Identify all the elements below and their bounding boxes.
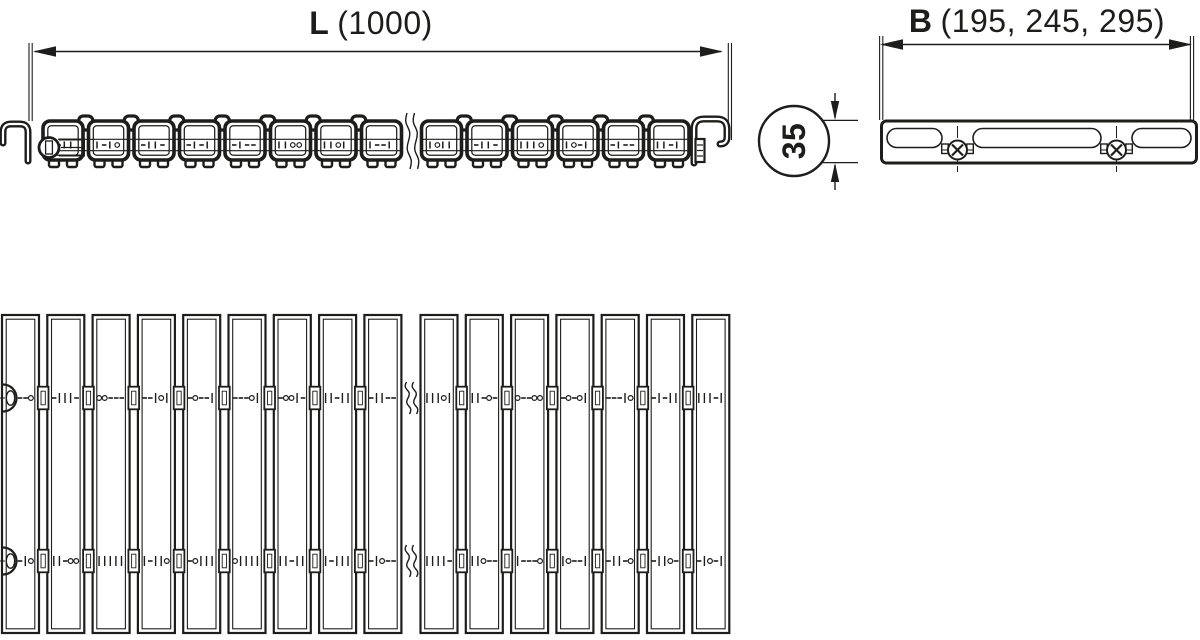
break-line xyxy=(405,382,411,414)
length-value: (1000) xyxy=(337,5,433,41)
grate-slat xyxy=(602,315,639,633)
grate-slat xyxy=(511,315,548,633)
plan-view-slats xyxy=(2,315,729,633)
rail-gap-connector xyxy=(264,550,275,573)
break-line xyxy=(406,113,412,169)
height-dimension-label: 35 xyxy=(776,123,812,160)
end-view: B(195, 245, 295) 35 xyxy=(759,3,1197,190)
rail-gap-connector xyxy=(638,387,649,410)
grate-slat xyxy=(364,315,401,633)
grate-technical-drawing: L(1000) xyxy=(0,0,1200,640)
rail-gap-connector xyxy=(310,550,321,573)
break-line xyxy=(412,382,418,414)
left-edge-hook-icon xyxy=(3,124,28,161)
rail-gap-connector xyxy=(355,550,366,573)
rail-gap-connector xyxy=(456,550,467,573)
rail-gap-connector xyxy=(683,550,694,573)
grate-slat xyxy=(229,315,266,633)
break-symbol-side-view xyxy=(406,113,419,169)
grate-slat xyxy=(556,315,593,633)
grate-slat xyxy=(274,315,311,633)
rail-gap-connector xyxy=(128,387,139,410)
rail-gap-connector xyxy=(219,387,230,410)
rail-gap-connector xyxy=(310,387,321,410)
rail-gap-connector xyxy=(502,550,513,573)
left-screw-side-icon xyxy=(39,138,84,158)
rail-gap-connector xyxy=(38,550,49,573)
grate-slat xyxy=(183,315,220,633)
rail-gap-connector xyxy=(83,550,94,573)
grate-end-profile xyxy=(882,121,1197,172)
grate-slat xyxy=(138,315,175,633)
grate-slat xyxy=(47,315,84,633)
rail-gap-connector xyxy=(638,550,649,573)
rail-gap-connector xyxy=(38,387,49,410)
rail-gap-connector xyxy=(264,387,275,410)
width-letter: B xyxy=(909,3,933,39)
width-arrow-right-icon xyxy=(1169,39,1192,50)
rail-gap-connector xyxy=(83,387,94,410)
side-view-slat-modules xyxy=(43,116,689,167)
rail-gap-connector xyxy=(683,387,694,410)
drawing-canvas: L(1000) xyxy=(0,0,1200,640)
length-arrow-right-icon xyxy=(700,46,723,57)
length-dimension-label: L(1000) xyxy=(309,5,433,41)
rail-gap-connector xyxy=(174,387,185,410)
right-screw-side-icon xyxy=(696,139,705,162)
rail-gap-connector xyxy=(592,387,603,410)
grate-slat xyxy=(93,315,130,633)
break-line xyxy=(405,545,411,577)
length-letter: L xyxy=(309,5,329,41)
grate-slat xyxy=(647,315,684,633)
height-arrow-down-icon xyxy=(831,101,839,120)
height-arrow-up-icon xyxy=(831,163,839,182)
rail-gap-connector xyxy=(219,550,230,573)
left-fixing-slot xyxy=(6,391,14,405)
rail-gap-connector xyxy=(128,550,139,573)
width-dimension-label: B(195, 245, 295) xyxy=(909,3,1165,39)
grate-slat xyxy=(466,315,503,633)
rail-gap-connector xyxy=(502,387,513,410)
length-arrow-left-icon xyxy=(33,46,56,57)
rail-gap-connector xyxy=(547,387,558,410)
grate-slat xyxy=(319,315,356,633)
width-value: (195, 245, 295) xyxy=(941,3,1166,39)
left-fixing-slot xyxy=(6,554,14,568)
rail-gap-connector xyxy=(355,387,366,410)
side-view: L(1000) xyxy=(3,5,732,169)
rail-gap-connector xyxy=(456,387,467,410)
plan-view xyxy=(0,315,729,633)
rail-gap-connector xyxy=(592,550,603,573)
width-extension-lines xyxy=(880,36,1194,120)
grate-slat xyxy=(421,315,458,633)
width-arrow-left-icon xyxy=(880,39,903,50)
break-line xyxy=(413,113,419,169)
rail-gap-connector xyxy=(547,550,558,573)
grate-slat xyxy=(2,315,39,633)
break-line xyxy=(412,545,418,577)
grate-slat xyxy=(692,315,729,633)
rail-gap-connector xyxy=(174,550,185,573)
break-symbol-plan-view xyxy=(405,382,418,577)
